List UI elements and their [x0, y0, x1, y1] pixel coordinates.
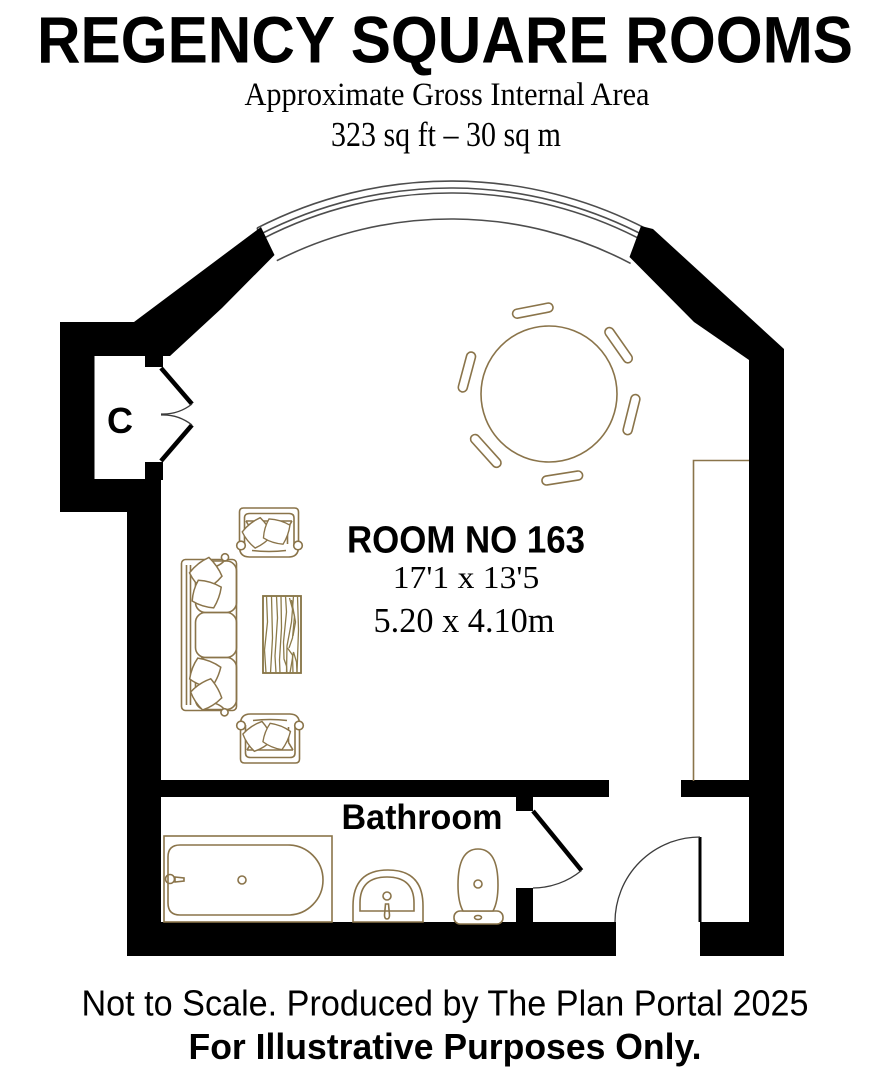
- svg-text:5.20 x 4.10m: 5.20 x 4.10m: [374, 601, 555, 640]
- svg-text:ROOM NO 163: ROOM NO 163: [347, 520, 585, 562]
- svg-text:Not to Scale. Produced by The: Not to Scale. Produced by The Plan Porta…: [82, 983, 809, 1024]
- svg-text:Bathroom: Bathroom: [342, 797, 503, 837]
- svg-text:C: C: [107, 400, 133, 441]
- svg-text:17'1 x 13'5: 17'1 x 13'5: [393, 559, 540, 595]
- svg-text:REGENCY SQUARE ROOMS: REGENCY SQUARE ROOMS: [37, 3, 853, 77]
- svg-text:Approximate Gross Internal Are: Approximate Gross Internal Area: [245, 77, 650, 113]
- svg-text:For Illustrative Purposes Only: For Illustrative Purposes Only.: [189, 1026, 702, 1067]
- svg-text:323 sq ft – 30 sq m: 323 sq ft – 30 sq m: [331, 115, 561, 154]
